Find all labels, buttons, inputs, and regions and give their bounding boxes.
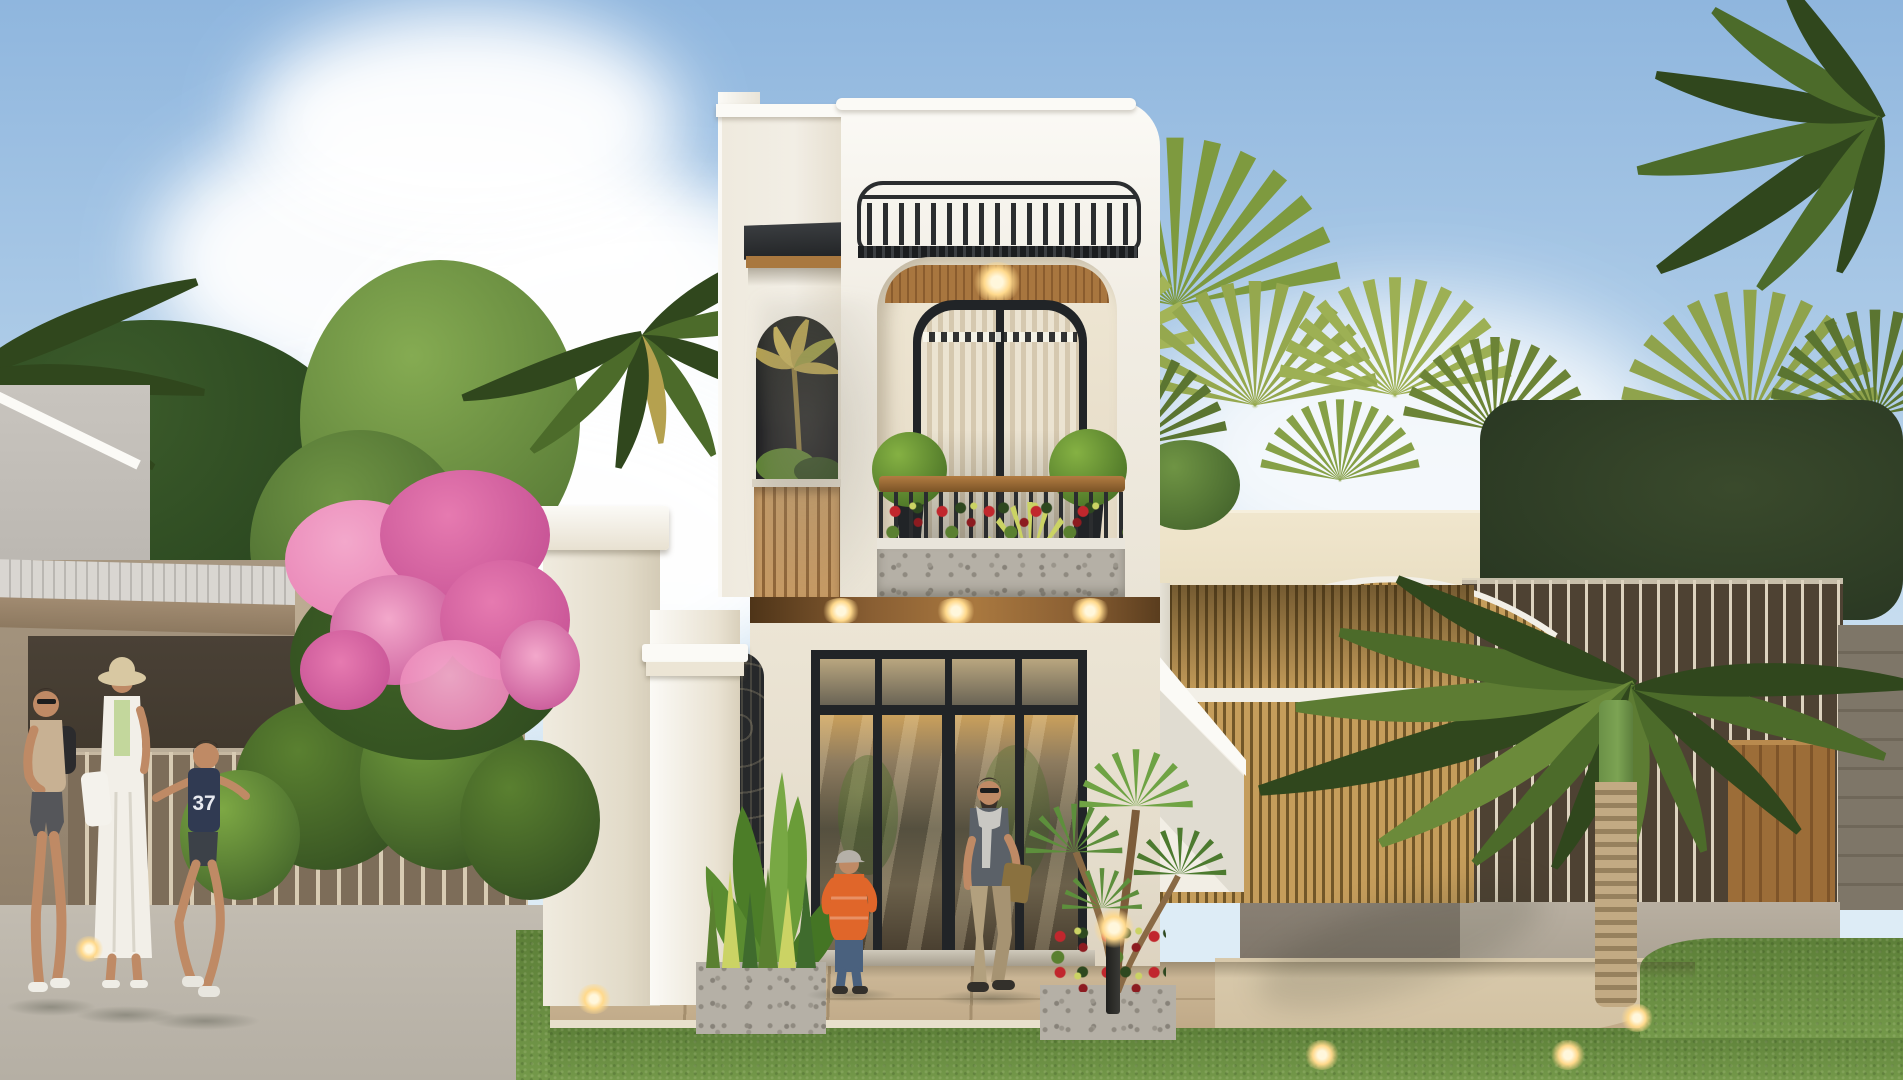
arm [967,840,972,886]
inner-top-green [114,700,130,756]
door-transom-mullion [875,659,882,705]
pants-leg [970,886,988,984]
person-man-scarf [942,776,1042,1002]
tower-awning-soffit [746,256,842,268]
roof-railing [857,181,1141,253]
soffit-downlight [1068,598,1112,624]
palm-trunk-wrapped [1595,782,1637,1007]
sansevieria-blade [778,888,796,968]
cloud-large-top [250,10,680,230]
leg [206,864,220,988]
tote-bag [80,771,112,828]
dracaena-rosette [1079,749,1193,809]
sandal [102,980,120,988]
sansevieria-planter-box [696,962,826,1034]
sunglasses [980,788,999,793]
tower-awning-slab [744,222,842,259]
sansevieria-left [700,868,824,968]
scene-architectural-render: 37 [0,0,1903,1080]
soffit-downlight [934,598,978,624]
balcony-planter-cap [877,538,1125,549]
leg-foot [110,958,138,982]
garden-light [1550,1040,1586,1070]
window-vent-band [923,332,1077,342]
palm-right-large [1190,470,1903,800]
garden-light [1304,1040,1340,1070]
bougainvillea-pink [400,640,510,730]
sansevieria-blade [758,868,778,968]
person-man-backpack [6,682,84,1014]
recess-downlight-glow [972,262,1022,302]
balcony-planter [877,549,1125,599]
door-transom-mullion [1015,659,1022,705]
bougainvillea-pink-spill [500,620,580,710]
flat-cap [835,850,865,863]
roof-railing-balusters [867,203,1131,245]
main-parapet-cap [836,98,1136,110]
person-child-orange [812,846,886,998]
door-transom-mullion [945,659,952,705]
head [193,743,219,769]
leg [179,864,196,978]
bougainvillea-pink [300,630,390,710]
garden-light [576,984,612,1014]
sneaker [198,986,220,997]
arm [156,782,188,798]
sansevieria-blade [706,886,720,968]
leg [840,972,858,988]
shoe [992,980,1015,990]
sansevieria-blade [722,870,740,968]
arm [220,780,246,796]
shoe [50,978,70,988]
sandal [130,980,148,988]
pants-leg [991,886,1012,982]
shoe [967,982,989,992]
palm-trunk-green [1599,700,1633,790]
lawn-wedge-right [1640,938,1903,1038]
gate-pillar-tall-cap [534,506,669,550]
roof-railing-midrail [861,195,1137,199]
boy-shirt-number: 37 [192,792,215,815]
sunglasses [37,699,56,704]
soffit-downlight [820,598,862,624]
shoe [28,982,48,992]
bollard-light-glow [1094,908,1134,948]
tower-cap [716,104,846,117]
person-boy-running: 37 [150,736,250,1026]
dracaena-rosette [1134,828,1227,877]
shorts [30,792,64,836]
shoe [852,986,868,994]
gate-pillar-cornice [642,644,748,662]
hedge-left-3 [460,740,600,900]
sansevieria-blade [742,892,758,968]
leg [54,836,62,980]
leg [36,836,42,982]
sneaker [182,976,204,987]
hat-brim [98,670,146,686]
jeans [835,940,863,972]
tower-awning-shadow [748,268,842,286]
shoe [832,986,848,994]
gate-pillar-cornice-2 [646,662,744,676]
garden-light [74,936,104,962]
garden-light [1620,1004,1654,1032]
